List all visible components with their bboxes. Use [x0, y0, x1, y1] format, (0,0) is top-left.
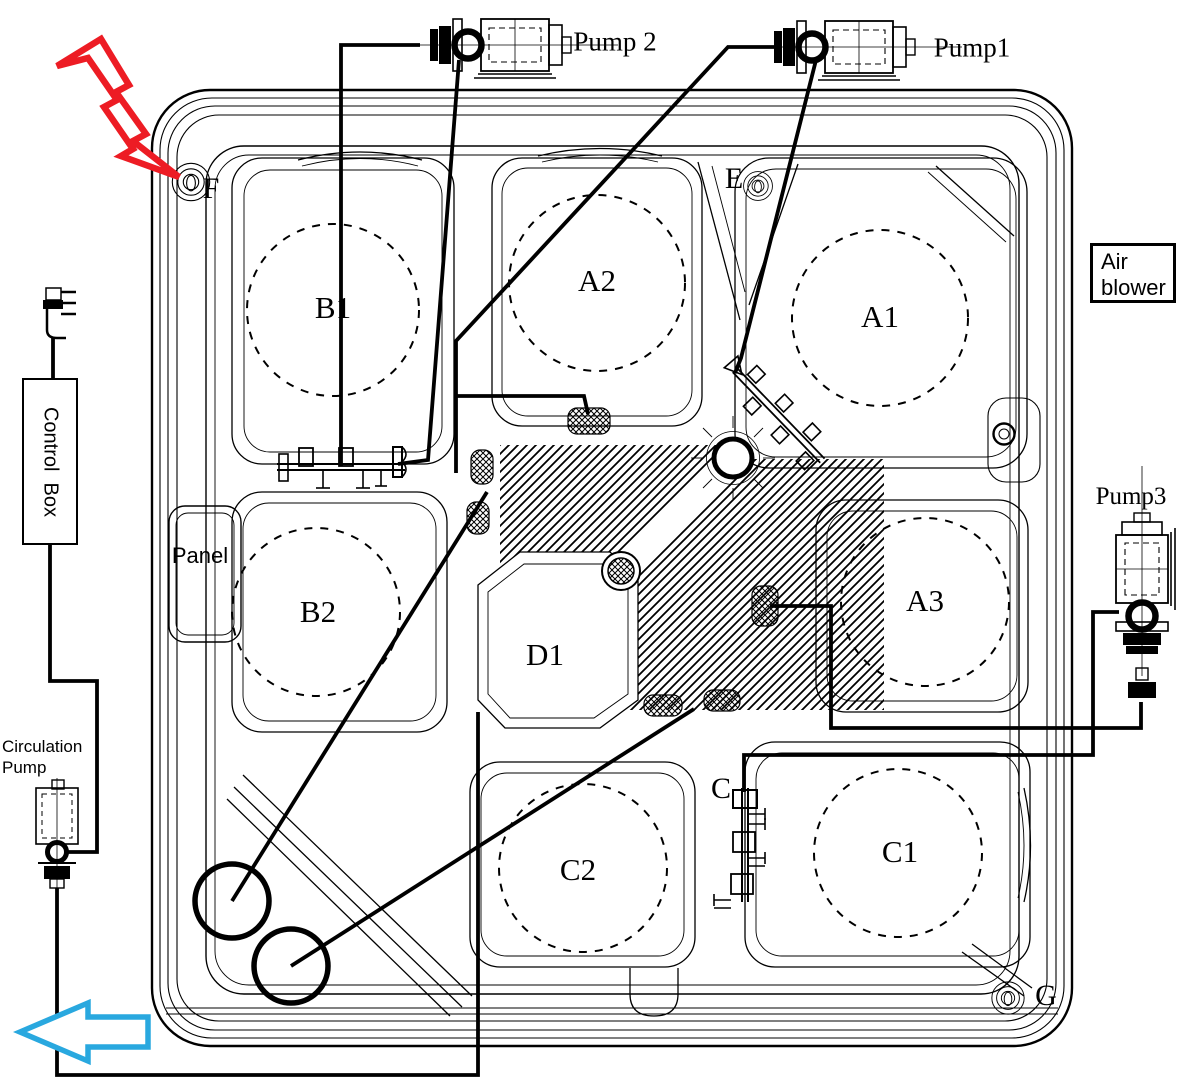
floor-drain: [602, 552, 640, 590]
seat-label-c2: C2: [560, 852, 596, 888]
light-g-icon: [992, 982, 1024, 1014]
seat-label-a1: A1: [861, 299, 899, 335]
lightning-icon: [57, 39, 179, 177]
seat-label-b2: B2: [300, 594, 336, 630]
seat-label-a3: A3: [906, 583, 944, 619]
pump1-icon: [752, 21, 962, 80]
outflow-arrow-icon: [20, 1003, 148, 1061]
marker-e: E: [725, 162, 743, 196]
pump2-label: Pump 2: [573, 27, 656, 58]
seat-label-d1: D1: [526, 637, 564, 673]
air-blower-box: Air blower: [1090, 243, 1176, 303]
seat-label-a2: A2: [578, 263, 616, 299]
c-jet-manifold: [714, 788, 765, 908]
side-fitting: [994, 424, 1015, 445]
marker-f: F: [203, 172, 220, 206]
panel-pod: [169, 506, 241, 642]
spa-plumbing-diagram: Pump 2 Pump1 Pump3 Air blower Control Bo…: [0, 0, 1200, 1082]
light-e-icon: [744, 172, 773, 201]
pump1-label: Pump1: [934, 33, 1011, 64]
power-cord-icon: [43, 288, 76, 338]
marker-g: G: [1035, 979, 1057, 1013]
seat-label-c1: C1: [882, 834, 918, 870]
panel-label: Panel: [172, 543, 228, 569]
circulation-pump-icon: [36, 778, 78, 900]
pump3-label: Pump3: [1096, 483, 1167, 511]
marker-c: C: [711, 772, 731, 806]
circulation-pump-label: Circulation Pump: [2, 736, 106, 778]
diagram-line-art: [0, 0, 1200, 1082]
control-box-label: Control Box: [39, 406, 62, 516]
air-blower-label: Air blower: [1101, 249, 1165, 301]
control-box: Control Box: [22, 378, 78, 545]
seat-label-b1: B1: [315, 290, 351, 326]
